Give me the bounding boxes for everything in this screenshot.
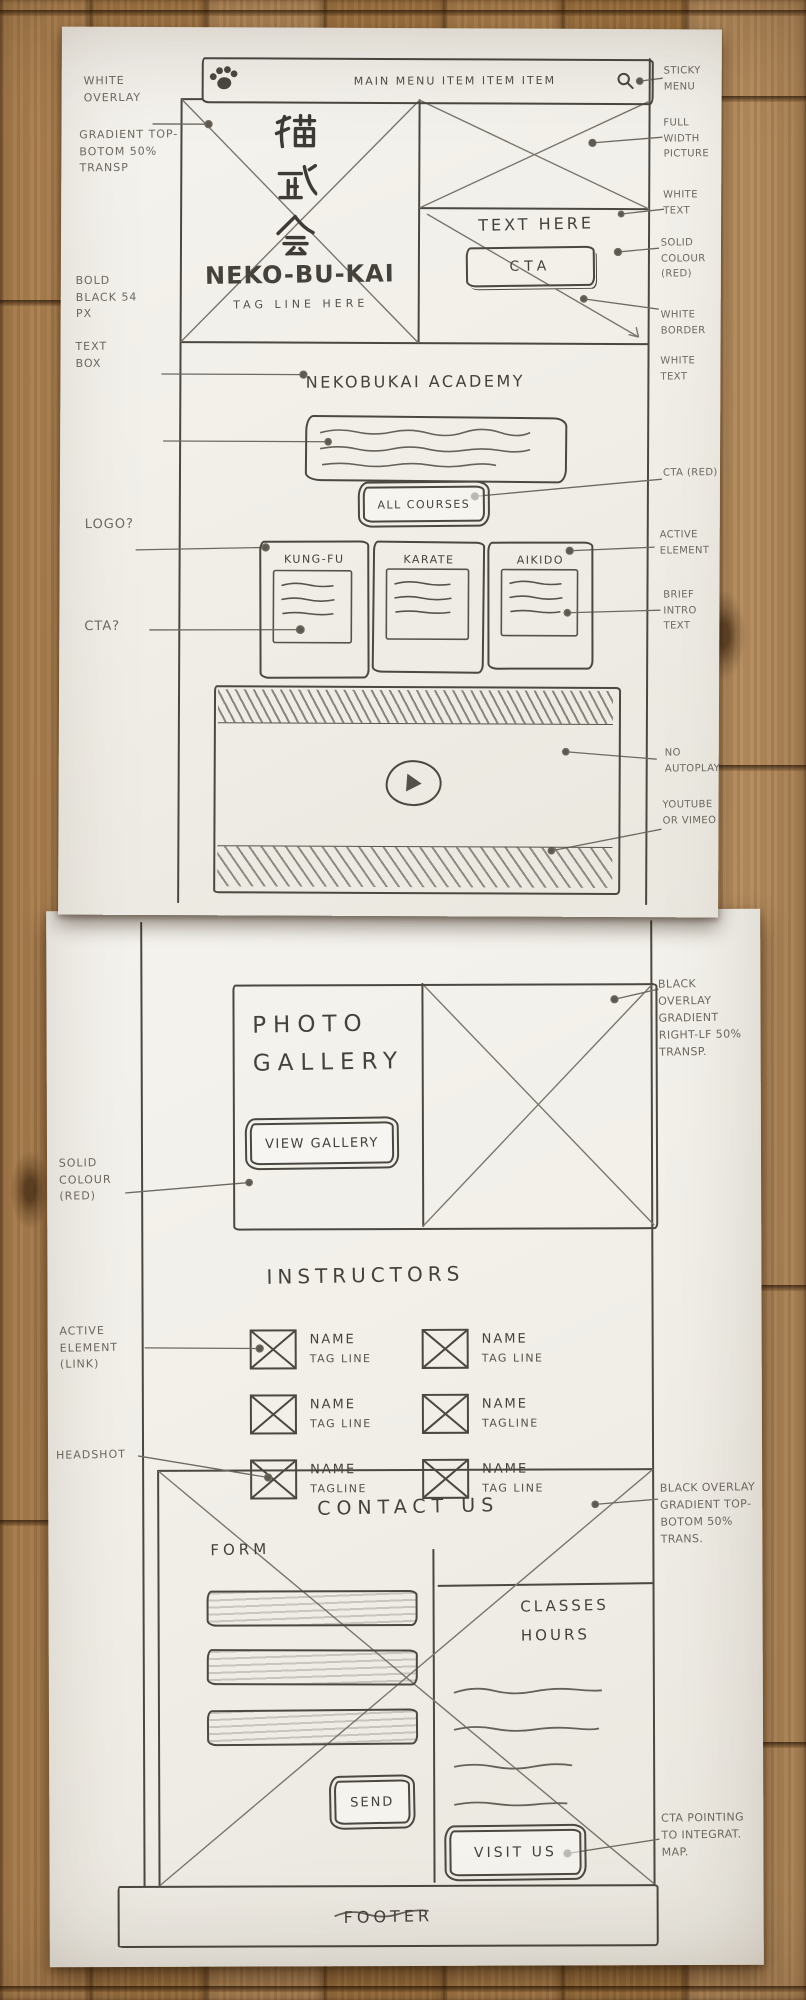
course-title: AIKIDO xyxy=(489,552,591,568)
course-card-aikido: AIKIDO xyxy=(487,542,593,670)
view-gallery-button: VIEW GALLERY xyxy=(250,1121,395,1165)
visit-us-label: VISIT US xyxy=(474,1844,557,1861)
course-title: KUNG-FU xyxy=(261,551,367,567)
note-active-element-link: ACTIVE ELEMENT (LINK) xyxy=(59,1322,145,1373)
instructors-heading: INSTRUCTORS xyxy=(255,1258,475,1292)
instructor-name: NAME xyxy=(310,1462,356,1477)
hero-cta-label: CTA xyxy=(509,258,551,275)
note-cta-question: CTA? xyxy=(84,617,144,637)
form-label: FORM xyxy=(210,1540,270,1559)
note-no-autoplay: NO AUTOPLAY xyxy=(665,745,720,777)
form-input-field xyxy=(207,1649,418,1685)
note-full-width-picture: FULL WIDTH PICTURE xyxy=(663,115,721,162)
instructor-tagline: TAG LINE xyxy=(310,1417,372,1430)
note-black-overlay-right-left: BLACK OVERLAY GRADIENT RIGHT-LF 50% TRAN… xyxy=(658,974,751,1061)
instructor-tagline: TAG LINE xyxy=(482,1352,544,1365)
footer-band: FOOTER xyxy=(118,1884,659,1948)
instructor-name: NAME xyxy=(482,1397,528,1412)
play-button-icon xyxy=(386,760,442,806)
note-active-element: ACTIVE ELEMENT xyxy=(660,527,720,559)
kanji-neko-icon xyxy=(273,109,317,153)
note-white-text-hero: WHITE TEXT xyxy=(663,187,721,219)
main-menu-items: MAIN MENU ITEM ITEM ITEM xyxy=(354,68,574,95)
course-title: KARATE xyxy=(375,551,483,568)
gallery-title: PHOTO GALLERY xyxy=(252,1005,424,1098)
wood-seam xyxy=(0,1986,806,1992)
hero-cta-button: CTA xyxy=(466,246,596,288)
wood-seam xyxy=(0,10,806,16)
footer-label: FOOTER xyxy=(343,1906,433,1927)
kanji-kai-icon xyxy=(273,211,317,255)
note-text-box: TEXT BOX xyxy=(75,338,130,372)
hero-tagline: TAG LINE HERE xyxy=(211,294,391,312)
note-cta-red: CTA (RED) xyxy=(663,465,721,481)
cat-paw-logo-icon xyxy=(206,61,242,97)
video-bottom-bar xyxy=(217,845,612,888)
search-magnifier-icon xyxy=(616,71,636,91)
note-gradient-top-bottom: GRADIENT TOP-BOTOM 50% TRANSP xyxy=(79,126,183,176)
menu-bar: MAIN MENU ITEM ITEM ITEM xyxy=(202,57,654,105)
note-cta-integrated-map: CTA POINTING TO INTEGRAT. MAP. xyxy=(661,1808,758,1861)
contact-heading: CONTACT US xyxy=(288,1489,529,1524)
instructor-tagline: TAGLINE xyxy=(482,1417,539,1430)
course-card-karate: KARATE xyxy=(372,541,485,674)
academy-heading: NEKOBUKAI ACADEMY xyxy=(290,367,540,395)
note-brief-intro-text: BRIEF INTRO TEXT xyxy=(663,587,718,634)
instructor-name: NAME xyxy=(310,1332,356,1347)
note-headshot: HEADSHOT xyxy=(56,1446,146,1464)
all-courses-label: ALL COURSES xyxy=(377,497,470,511)
instructor-name: NAME xyxy=(482,1332,528,1347)
form-input-field xyxy=(207,1708,418,1746)
course-card-kungfu: KUNG-FU xyxy=(259,541,369,679)
all-courses-button: ALL COURSES xyxy=(363,486,485,523)
wood-knot xyxy=(10,1150,50,1230)
video-player-frame xyxy=(213,685,621,895)
note-black-overlay-top-bottom: BLACK OVERLAY GRADIENT TOP-BOTOM 50% TRA… xyxy=(660,1478,757,1548)
note-solid-colour-red: SOLID COLOUR (RED) xyxy=(661,235,721,282)
hero-side-text: TEXT HERE xyxy=(451,211,621,237)
note-sticky-menu: STICKY MENU xyxy=(664,63,722,95)
hero-title: NEKO-BU-KAI xyxy=(191,258,409,291)
academy-text-box xyxy=(305,415,568,484)
photo-of-wireframe-sketch: { "colors": {"paper":"#f1efe8","pencil":… xyxy=(0,0,806,2000)
classes-hours-heading: CLASSES HOURS xyxy=(520,1590,641,1653)
note-white-overlay: WHITE OVERLAY xyxy=(84,72,184,106)
send-label: SEND xyxy=(350,1794,395,1810)
note-bold-black-54px: BOLD BLACK 54 PX xyxy=(76,272,138,322)
visit-us-button: VISIT US xyxy=(449,1829,582,1877)
video-top-bar xyxy=(218,689,613,725)
wireframe-sheet-top: MAIN MENU ITEM ITEM ITEM xyxy=(58,27,722,918)
instructor-name: NAME xyxy=(310,1397,356,1412)
view-gallery-label: VIEW GALLERY xyxy=(265,1135,379,1152)
wireframe-sheet-bottom: PHOTO GALLERY VIEW GALLERY INSTRUCTORS N… xyxy=(46,909,764,1967)
note-white-border: WHITE BORDER xyxy=(661,307,721,339)
instructor-name: NAME xyxy=(482,1462,528,1477)
kanji-bu-icon xyxy=(273,160,317,204)
send-button: SEND xyxy=(334,1779,411,1825)
note-white-text-cta: WHITE TEXT xyxy=(660,353,718,385)
note-youtube-or-vimeo: YOUTUBE OR VIMEO xyxy=(662,797,720,829)
form-input-field xyxy=(207,1590,418,1627)
note-solid-colour-red-gallery: SOLID COLOUR (RED) xyxy=(59,1154,140,1205)
instructor-tagline: TAG LINE xyxy=(310,1352,372,1365)
note-logo-question: LOGO? xyxy=(85,514,155,534)
